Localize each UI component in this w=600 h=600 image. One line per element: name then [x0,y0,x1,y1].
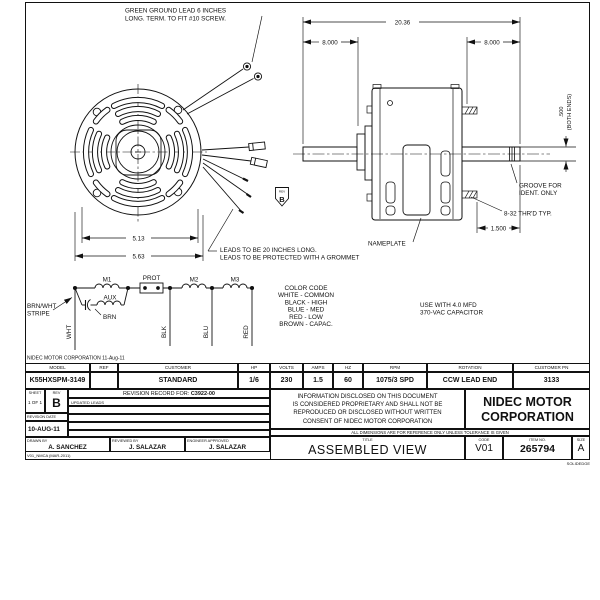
label-aux: AUX [104,295,118,302]
coil-m3 [223,284,247,288]
record-number: C3922-00 [191,391,215,397]
cad-note: SOLIDEDGE [545,461,590,466]
spec-header: HZ [333,363,363,372]
item-no-cell: ITEM NO. 265794 [503,436,572,460]
color-code-line: RED - LOW [289,314,324,321]
dim-left-shaft: 8.000 [322,39,338,46]
spec-value-rotation: CCW LEAD END [427,372,513,389]
form-code: V01_NMCA (MAR-2011) [27,453,71,458]
item-no-value: 265794 [504,443,571,455]
body-slot [441,182,450,203]
dim-bolt-circle: 5.13 [132,235,145,242]
dimension-labels: 20.36 8.000 8.000 5.13 5.63 1.500 .500 (… [132,19,573,260]
color-code-line: BROWN - CAPAC. [279,321,333,328]
proprietary-line: IS CONSIDERED PROPRIETARY AND SHALL NOT … [271,401,464,409]
color-code-line: WHITE - COMMON [278,292,334,299]
color-code-title: COLOR CODE [285,285,328,292]
engineer-approved-value: J. SALAZAR [186,444,269,451]
bolt-head [367,106,372,113]
body-slot [441,206,450,215]
spec-header: CUSTOMER [118,363,238,372]
side-view [293,85,550,221]
spec-header: CUSTOMER PN [513,363,590,372]
spec-header: REF [90,363,118,372]
revision-row-3 [68,414,270,422]
sheet-label: SHEET [26,390,44,396]
spec-header: MODEL [25,363,90,372]
wiring-schematic [53,283,254,350]
hub-step-inner [357,134,365,170]
reviewed-by-value: J. SALAZAR [111,444,184,451]
dim-shaft-ext: 1.500 [491,225,507,232]
spec-value-model: K55HXSPM-3149 [25,372,90,389]
label-blu: BLU [203,325,210,338]
bolt-head [367,194,372,201]
color-code-line: BLUE - MED [288,307,325,314]
company-logo: NIDEC MOTOR CORPORATION [465,389,590,429]
label-brn-wht-2: STRIPE [27,311,50,318]
revision-date-value: 10-AUG-11 [25,421,68,437]
code-value: V01 [466,443,502,454]
drawn-by-value: A. SANCHEZ [26,444,109,451]
spec-value-hp: 1/6 [238,372,270,389]
capacitor-note-line2: 370-VAC CAPACITOR [420,310,483,317]
thread-note: 8-32 THR'D TYP. [504,211,552,218]
revision-row-2 [68,406,270,414]
proprietary-note: INFORMATION DISCLOSED ON THIS DOCUMENT I… [270,389,465,429]
dim-overall: 20.36 [395,19,411,26]
company-line2: CORPORATION [466,410,589,425]
size-value: A [573,443,589,454]
coil-m2 [182,284,206,288]
capacitor-note-line1: USE WITH 4.0 MFD [420,302,477,309]
label-m2: M2 [190,277,199,284]
drawing-canvas: 20.36 8.000 8.000 5.13 5.63 1.500 .500 (… [0,0,600,362]
label-wht: WHT [66,325,73,339]
capacitor-plate-curved [87,300,90,311]
spec-value-customer: STANDARD [118,372,238,389]
schematic-labels: M1 PROT M2 M3 AUX BRN BRN/WHT STRIPE WHT… [27,275,250,339]
threaded-stud [462,191,477,198]
revision-record-header: REVISION RECORD FOR: C3922-00 [68,389,270,398]
drawing-sheet: 20.36 8.000 8.000 5.13 5.63 1.500 .500 (… [0,0,600,600]
body-slot [441,151,450,176]
vent-hole [388,101,393,106]
revision-row-4 [68,422,270,430]
spec-value-ref [90,372,118,389]
stator-outline [116,130,161,175]
dim-right-shaft: 8.000 [484,39,500,46]
rev-flag-label: REV [279,190,285,194]
dim-shaft-dia-note: (BOTH ENDS) [567,94,573,130]
dim-body-dia: 5.63 [132,253,145,260]
color-code-line: BLACK - HIGH [285,299,328,306]
spec-header: VOLTS [270,363,303,372]
nameplate-label: NAMEPLATE [368,241,406,248]
coil-m1 [95,284,119,288]
spec-value-customer-pn: 3133 [513,372,590,389]
spec-header: HP [238,363,270,372]
record-title: REVISION RECORD FOR: [123,391,189,397]
title-cell: TITLE ASSEMBLED VIEW [270,436,465,460]
rev-cell: REV B [45,389,68,413]
leader-lines [208,16,517,251]
label-red: RED [243,325,250,339]
code-cell: CODE V01 [465,436,503,460]
ground-note-line2: LONG. TERM. TO FIT #10 SCREW. [125,16,226,23]
label-brn: BRN [103,314,117,321]
sheet-value: 1 OF 1 [26,396,44,405]
revision-row-5 [68,430,270,437]
spec-header-row: MODEL REF CUSTOMER HP VOLTS AMPS HZ RPM … [25,363,590,372]
label-brn-wht-1: BRN/WHT [27,303,57,310]
label-blk: BLK [161,325,168,338]
spec-value-rpm: 1075/3 SPD [363,372,427,389]
title-value: ASSEMBLED VIEW [271,443,464,457]
reviewed-by-cell: REVIEWED BY J. SALAZAR [110,437,185,452]
title-block: MODEL REF CUSTOMER HP VOLTS AMPS HZ RPM … [25,363,590,460]
color-code: COLOR CODE WHITE - COMMON BLACK - HIGH B… [278,285,334,328]
nameplate [403,145,430,215]
dim-shaft-dia: .500 [559,107,565,118]
spec-header: ROTATION [427,363,513,372]
ground-note-line1: GREEN GROUND LEAD 6 INCHES [125,8,226,15]
spec-value-row: K55HXSPM-3149 STANDARD 1/6 230 1.5 60 10… [25,372,590,389]
company-line1: NIDEC MOTOR [466,395,589,410]
hub-step-outer [365,126,372,180]
leads-note-line2: LEADS TO BE PROTECTED WITH A GROMMET [220,255,360,262]
label-prot: PROT [143,275,161,282]
lead-wires [202,142,267,213]
leads-note-line1: LEADS TO BE 20 INCHES LONG. [220,247,317,254]
rev-value: B [46,396,67,410]
dimension-lines [75,17,576,261]
proprietary-line: REPRODUCED OR DISCLOSED WITHOUT WRITTEN [271,409,464,417]
drawn-by-cell: DRAWN BY A. SANCHEZ [25,437,110,452]
revision-date-label: REVISION DATE [25,413,68,421]
dims-note: ALL DIMENSIONS ARE FOR REFERENCE ONLY UN… [270,429,590,436]
spec-value-volts: 230 [270,372,303,389]
spec-header: AMPS [303,363,333,372]
revision-row-1: UPDATED LEADS [68,398,270,406]
spec-header: RPM [363,363,427,372]
sheet-cell: SHEET 1 OF 1 [25,389,45,413]
size-cell: SIZE A [572,436,590,460]
label-m3: M3 [231,277,240,284]
spec-value-amps: 1.5 [303,372,333,389]
proprietary-line: CONSENT OF NIDEC MOTOR CORPORATION [271,418,464,426]
threaded-stud [462,107,477,114]
groove-note-line2: IDENT. ONLY [519,190,558,197]
coil-aux [97,301,121,305]
label-m1: M1 [103,277,112,284]
spec-value-hz: 60 [333,372,363,389]
body-slot [386,182,395,203]
footer-note: NIDEC MOTOR CORPORATION 11-Aug-11 [27,356,125,362]
engineer-approved-cell: ENGINEER APPROVED J. SALAZAR [185,437,270,452]
rev-flag-value: B [279,195,285,204]
rev-flag: REV B [276,188,289,207]
ground-lead [183,63,262,114]
body-slot [386,206,395,215]
groove-note-line1: GROOVE FOR [519,183,562,190]
proprietary-line: INFORMATION DISCLOSED ON THIS DOCUMENT [271,393,464,401]
